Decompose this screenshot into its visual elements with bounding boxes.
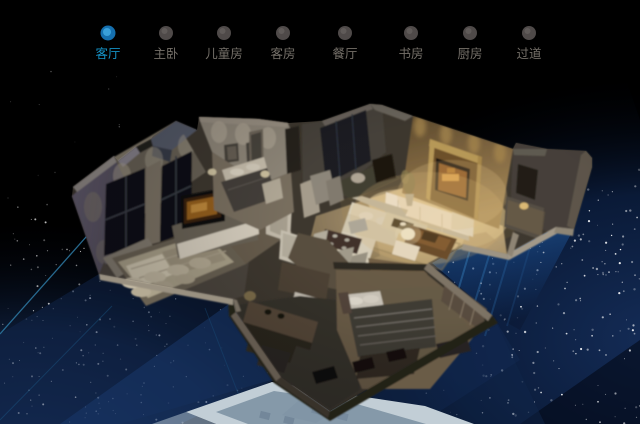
svg-text:儿童房: 儿童房 xyxy=(205,46,243,61)
svg-text:餐厅: 餐厅 xyxy=(332,46,357,61)
svg-text:客房: 客房 xyxy=(270,46,295,61)
svg-text:书房: 书房 xyxy=(398,46,423,61)
svg-text:客厅: 客厅 xyxy=(95,46,120,61)
svg-text:过道: 过道 xyxy=(516,47,542,61)
svg-text:厨房: 厨房 xyxy=(457,46,482,61)
svg-text:主卧: 主卧 xyxy=(153,47,178,61)
